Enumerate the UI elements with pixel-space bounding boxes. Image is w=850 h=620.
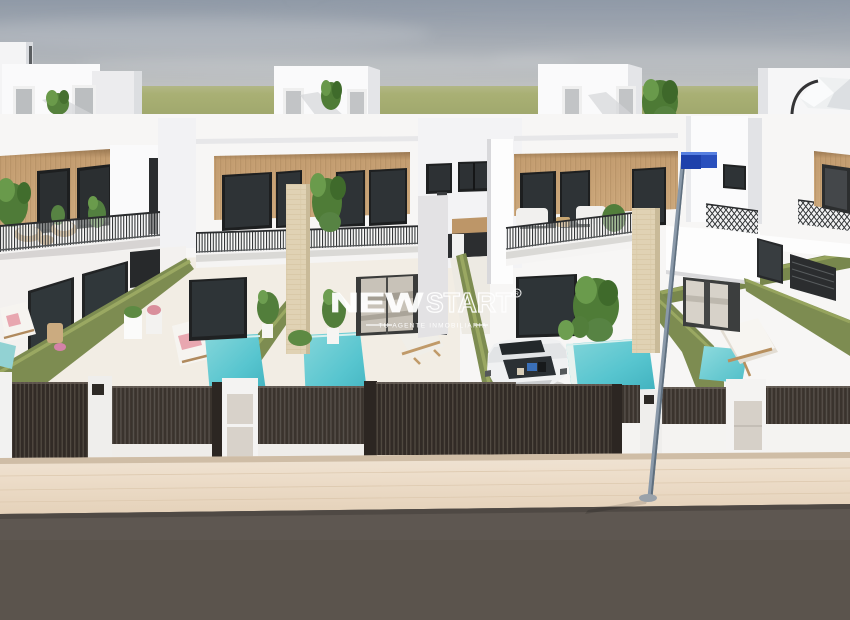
svg-text:TU AGENTE INMOBILIARIA: TU AGENTE INMOBILIARIA bbox=[379, 323, 488, 330]
svg-text:NEW: NEW bbox=[330, 287, 424, 318]
svg-text:START: START bbox=[426, 287, 512, 318]
svg-text:R: R bbox=[515, 292, 519, 298]
